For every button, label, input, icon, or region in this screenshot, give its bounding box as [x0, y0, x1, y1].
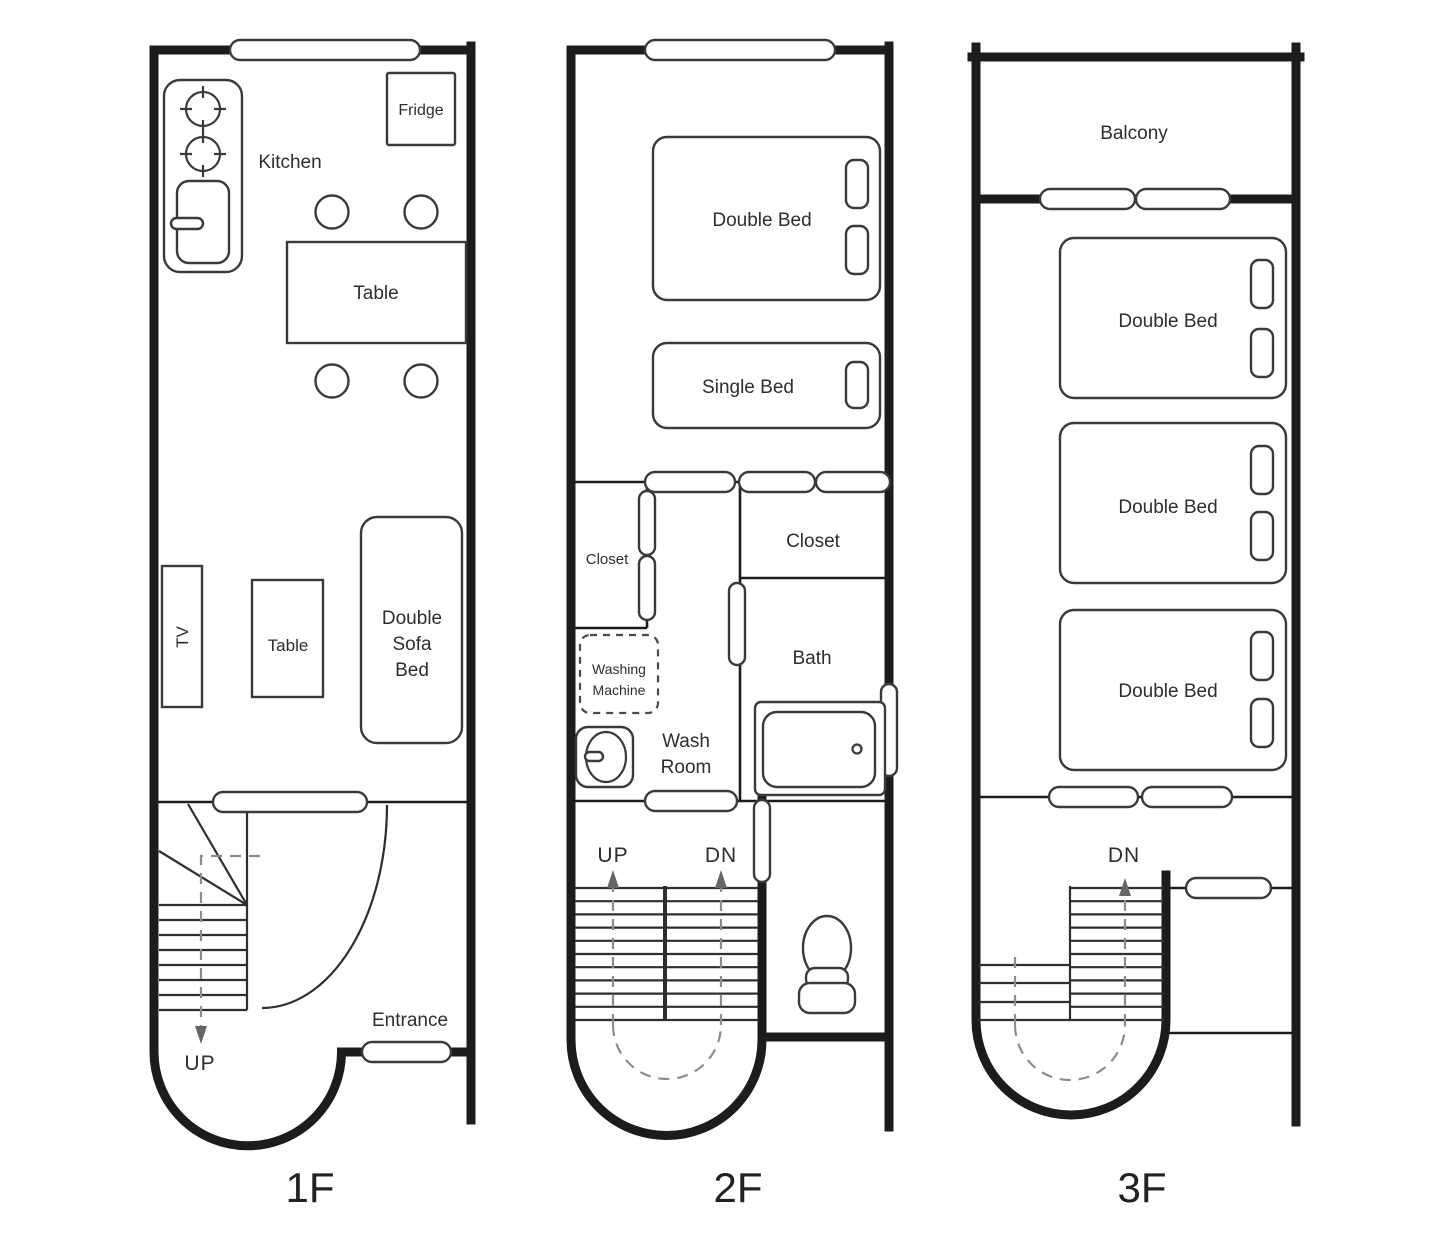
- bath-label: Bath: [792, 648, 831, 669]
- 1f-entrance-door-arc: [262, 805, 387, 1008]
- floor-plan-3f: Balcony Double Bed Double Bed Double Bed…: [972, 47, 1300, 1211]
- chair: [316, 365, 349, 398]
- 1f-hall-door-opening: [213, 792, 367, 812]
- pillow-icon: [1251, 632, 1273, 680]
- 2f-closet-slider: [739, 472, 815, 492]
- 1f-stairs: [159, 803, 260, 1044]
- wash-room-label: Wash: [662, 731, 710, 752]
- sofa-bed-label: Double: [382, 608, 442, 629]
- double-sofa-bed: [361, 517, 462, 743]
- faucet-icon: [585, 752, 603, 761]
- fridge-label: Fridge: [398, 102, 443, 119]
- 3f-bedroom-slider: [1142, 787, 1232, 807]
- 2f-bedroom-door: [645, 472, 735, 492]
- 2f-closet-small-slider: [639, 491, 655, 555]
- closet-label: Closet: [786, 531, 841, 552]
- floor-title-1f: 1F: [285, 1164, 334, 1211]
- 2f-top-window: [645, 40, 835, 60]
- pillow-icon: [1251, 329, 1273, 377]
- toilet-icon: [799, 916, 855, 1013]
- dining-table-label: Table: [353, 283, 398, 304]
- floor-plan-1f: Kitchen Fridge Table TV Table Double Sof…: [154, 40, 471, 1211]
- balcony-label: Balcony: [1100, 123, 1168, 144]
- floor-plan-2f: Double Bed Single Bed Closet Closet Bath…: [571, 40, 897, 1211]
- 2f-toilet-door: [754, 800, 770, 882]
- floor-plan-sheet: Kitchen Fridge Table TV Table Double Sof…: [0, 0, 1440, 1233]
- pillow-icon: [1251, 512, 1273, 560]
- pillow-icon: [846, 362, 868, 408]
- 2f-up-arrow-icon: [607, 870, 619, 888]
- 2f-dn-arrow-icon: [715, 870, 727, 888]
- 2f-stairs: [575, 870, 758, 1079]
- 2f-closet-small-slider: [639, 556, 655, 620]
- living-table-label: Table: [268, 636, 309, 655]
- kitchen-label: Kitchen: [258, 152, 321, 173]
- 3f-stairs: [978, 878, 1164, 1080]
- 3f-landing-door: [1186, 878, 1271, 898]
- up-label: UP: [597, 844, 628, 867]
- single-bed-label: Single Bed: [702, 377, 794, 398]
- 2f-bath-door: [729, 583, 745, 665]
- 1f-top-window: [230, 40, 420, 60]
- chair: [405, 196, 438, 229]
- double-bed-label: Double Bed: [1118, 681, 1217, 702]
- sofa-bed-label: Bed: [395, 660, 429, 681]
- closet-small-label: Closet: [586, 551, 629, 568]
- 3f-balcony-slider: [1136, 189, 1230, 209]
- pillow-icon: [1251, 260, 1273, 308]
- washing-machine-label: Machine: [593, 682, 646, 698]
- wash-basin: [576, 727, 633, 787]
- chair: [405, 365, 438, 398]
- 2f-washroom-door: [645, 791, 737, 811]
- floor-title-2f: 2F: [713, 1164, 762, 1211]
- pillow-icon: [846, 226, 868, 274]
- wash-room-label: Room: [661, 757, 712, 778]
- dn-label: DN: [1108, 844, 1140, 867]
- floor-title-3f: 3F: [1117, 1164, 1166, 1211]
- dn-label: DN: [705, 844, 737, 867]
- kitchen-counter: [164, 80, 242, 272]
- 2f-closet-slider: [816, 472, 890, 492]
- entrance-label: Entrance: [372, 1010, 448, 1031]
- double-bed-label: Double Bed: [1118, 497, 1217, 518]
- pillow-icon: [1251, 446, 1273, 494]
- up-label: UP: [184, 1052, 215, 1075]
- pillow-icon: [846, 160, 868, 208]
- 1f-up-arrow-icon: [195, 1026, 207, 1044]
- faucet-icon: [171, 218, 203, 229]
- 3f-bedroom-slider: [1049, 787, 1138, 807]
- tv-label: TV: [173, 625, 192, 647]
- 1f-entrance-door: [362, 1042, 451, 1062]
- 3f-balcony-slider: [1040, 189, 1135, 209]
- double-bed-label: Double Bed: [712, 210, 811, 231]
- chair: [316, 196, 349, 229]
- double-bed-label: Double Bed: [1118, 311, 1217, 332]
- sofa-bed-label: Sofa: [392, 634, 432, 655]
- pillow-icon: [1251, 699, 1273, 747]
- washing-machine-label: Washing: [592, 661, 646, 677]
- bathtub: [755, 702, 885, 795]
